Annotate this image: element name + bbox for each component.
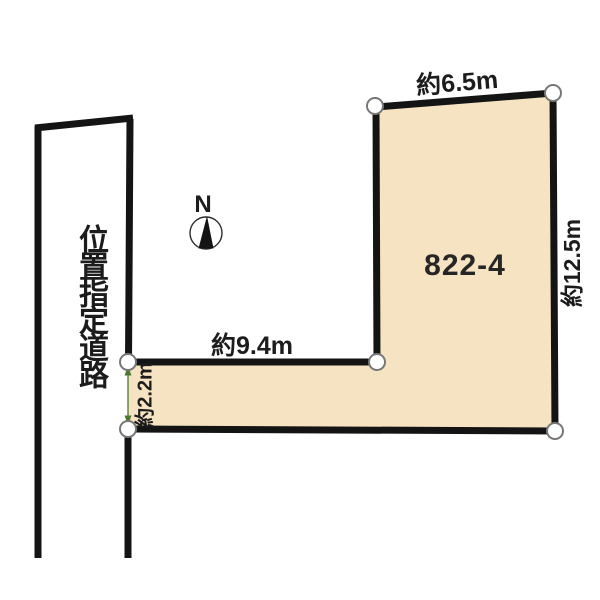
vertex-marker [545,85,561,101]
vertex-marker [367,98,383,114]
dimension-right-label: 約12.5m [553,219,587,307]
road-label: 位置指定道路 [68,224,112,386]
dimension-left-label: 約2.2m [129,362,158,428]
road-right-line-upper [129,119,131,362]
compass-n-label: N [194,191,211,219]
dimension-top-label: 約6.5m [415,60,500,102]
compass-needle-icon [199,216,214,249]
parcel-number-label: 822-4 [424,249,506,283]
vertex-marker [369,354,385,370]
road-top-cap [35,118,133,128]
dimension-middle-label: 約9.4m [211,326,293,362]
plot-diagram: 位置指定道路 N 約6.5m 約12.5m 822-4 約9.4m 約2.2m [0,0,600,600]
vertex-marker [547,423,563,439]
